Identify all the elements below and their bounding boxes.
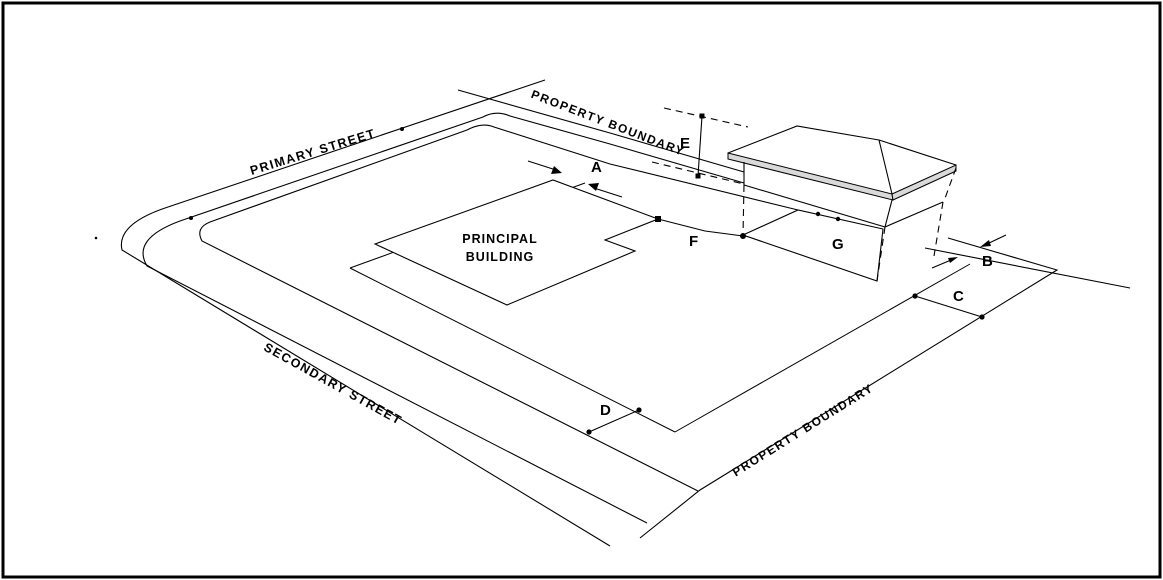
- c-dot-2: [979, 314, 984, 319]
- e-dot-top: [700, 114, 705, 119]
- rear-lane-line-right: [925, 248, 1130, 288]
- diagram-canvas: PRINCIPAL BUILDING: [0, 0, 1163, 580]
- a-arrow-line-1: [528, 161, 556, 170]
- street-node-dot-2: [400, 127, 404, 131]
- hidden-edge-left: [743, 185, 744, 235]
- diagram-frame: [3, 3, 1160, 577]
- marker-c: C: [953, 288, 964, 305]
- dimension-c: [912, 293, 984, 319]
- secondary-street-label: SECONDARY STREET: [261, 340, 404, 428]
- marker-f: F: [689, 233, 698, 250]
- marker-e: E: [680, 135, 690, 152]
- street-outer-edge: [121, 80, 610, 546]
- principal-building-label-line1: PRINCIPAL: [462, 232, 537, 246]
- b-arrow-line-2: [932, 260, 951, 268]
- street-lines: [121, 80, 798, 546]
- primary-street-label: PRIMARY STREET: [248, 126, 377, 178]
- setback-rear-line: [675, 264, 970, 432]
- b-arrowhead-2: [948, 257, 958, 263]
- stray-dot: [95, 237, 98, 240]
- principal-building: PRINCIPAL BUILDING: [375, 180, 658, 305]
- ridge-level-dashed: [664, 108, 748, 127]
- dimension-f: [655, 216, 746, 239]
- site-plan-diagram: PRINCIPAL BUILDING: [0, 0, 1163, 580]
- front-property-line-and-lane-far: [200, 125, 798, 491]
- property-boundary-right-line: [640, 238, 1057, 538]
- pad-dot-2: [836, 217, 840, 221]
- f-dot-1: [655, 216, 661, 222]
- d-dimension-line: [589, 410, 639, 432]
- c-dot-1: [912, 293, 917, 298]
- hidden-edge-rear-right: [934, 202, 943, 256]
- principal-building-label-line2: BUILDING: [466, 250, 534, 264]
- e-dimension-line: [698, 116, 702, 176]
- d-dot-1: [586, 429, 591, 434]
- marker-g: G: [832, 236, 844, 253]
- property-boundary-bottom-label: PROPERTY BOUNDARY: [730, 381, 876, 480]
- b-arrowhead-1: [980, 240, 991, 247]
- f-dot-2: [740, 233, 746, 239]
- street-node-dot-1: [189, 216, 193, 220]
- marker-b: B: [982, 253, 993, 270]
- marker-d: D: [600, 402, 611, 419]
- building-mass-fill: [728, 126, 956, 227]
- property-boundary-top-label: PROPERTY BOUNDARY: [529, 87, 687, 159]
- e-dot-bottom: [696, 174, 701, 179]
- pad-dot-1: [816, 212, 820, 216]
- c-dimension-line: [915, 296, 982, 317]
- d-dot-2: [636, 407, 641, 412]
- a-arrow-line-2: [594, 188, 622, 197]
- a-arrowhead-2: [588, 183, 599, 191]
- f-dimension-line: [658, 219, 743, 236]
- a-arrowhead-1: [551, 166, 562, 174]
- marker-a: A: [591, 159, 602, 176]
